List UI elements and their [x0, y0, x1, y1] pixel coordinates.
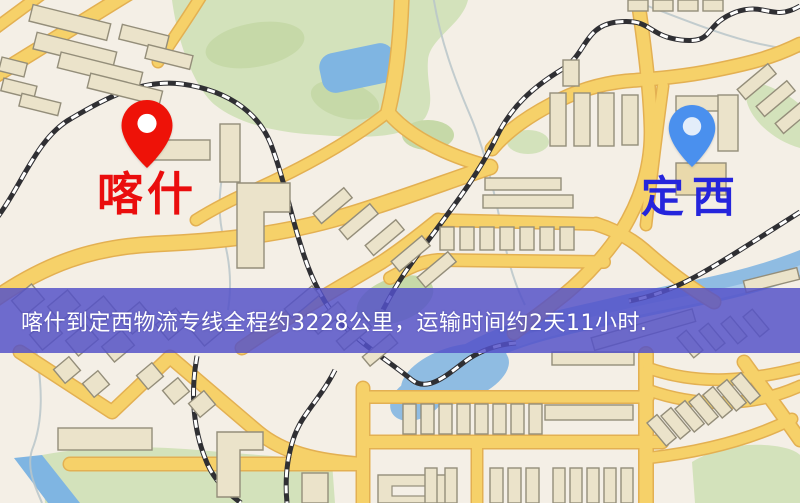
- map-image: [0, 0, 800, 503]
- origin-marker[interactable]: 喀什: [97, 100, 197, 218]
- route-info-banner: 喀什到定西物流专线全程约3228公里，运输时间约2天11小时.: [0, 288, 800, 353]
- route-info-text: 喀什到定西物流专线全程约3228公里，运输时间约2天11小时.: [0, 305, 647, 337]
- destination-marker[interactable]: 定西: [641, 105, 743, 221]
- map-canvas[interactable]: 喀什 定西 喀什到定西物流专线全程约3228公里，运输时间约2天11小时.: [0, 0, 800, 503]
- blue-location-pin-icon: [668, 105, 716, 167]
- origin-label: 喀什: [97, 170, 197, 218]
- red-location-pin-icon: [120, 100, 174, 168]
- destination-label: 定西: [641, 176, 743, 221]
